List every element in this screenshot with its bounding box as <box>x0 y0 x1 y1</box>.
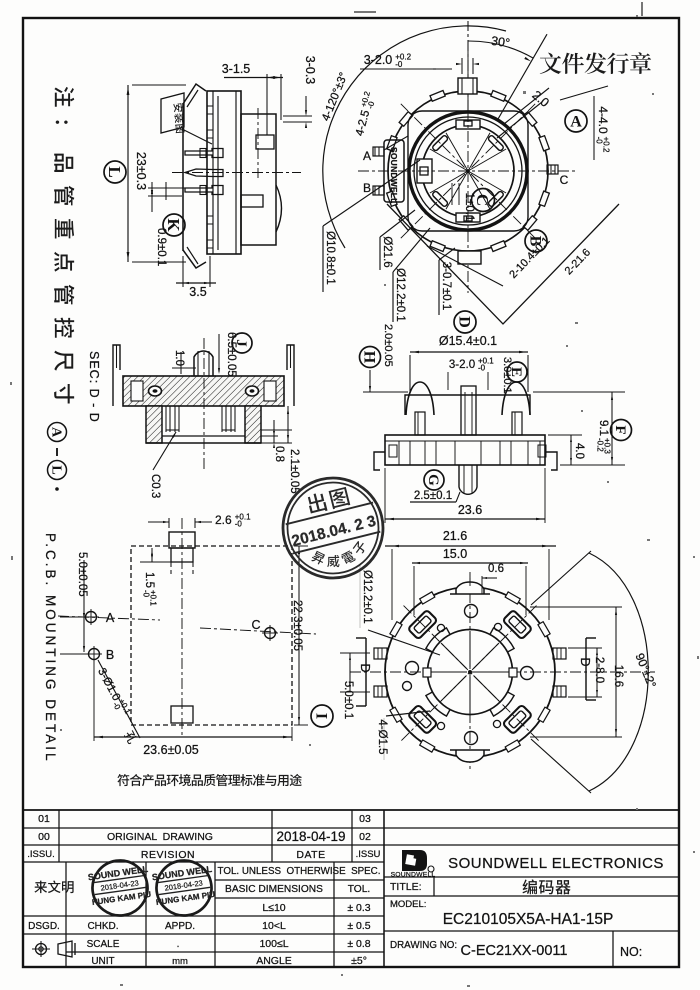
svg-text:ORIGINAL DRAWING: ORIGINAL DRAWING <box>107 831 213 843</box>
svg-text:APPD.: APPD. <box>165 921 195 932</box>
svg-text:TOL. UNLESS OTHERWISE SPEC.: TOL. UNLESS OTHERWISE SPEC. <box>218 866 381 877</box>
svg-text:F: F <box>612 425 628 434</box>
svg-text:.ISSU: .ISSU <box>356 849 381 860</box>
svg-text:± 0.8: ± 0.8 <box>347 938 370 950</box>
svg-text:Ø12.2±0.1: Ø12.2±0.1 <box>394 268 406 322</box>
svg-text:A: A <box>48 427 63 438</box>
svg-text:C-EC21XX-0011: C-EC21XX-0011 <box>461 943 568 959</box>
svg-text:4.0: 4.0 <box>573 443 585 459</box>
svg-text:D: D <box>456 316 473 328</box>
svg-text:2.5±0.1: 2.5±0.1 <box>414 490 452 502</box>
svg-text:-0: -0 <box>235 520 243 529</box>
svg-text:3.5: 3.5 <box>189 285 206 299</box>
svg-text:100≤L: 100≤L <box>259 938 288 950</box>
svg-text:SOUNDWELL ELECTRONICS: SOUNDWELL ELECTRONICS <box>448 855 664 872</box>
svg-text:D: D <box>358 663 372 672</box>
svg-text:CHKD.: CHKD. <box>87 921 118 932</box>
svg-text:01: 01 <box>38 813 50 825</box>
svg-text:EC210105X5A-HA1-15P: EC210105X5A-HA1-15P <box>443 911 614 928</box>
svg-text:02: 02 <box>359 831 371 843</box>
svg-text:3.0±0.1: 3.0±0.1 <box>501 357 513 394</box>
svg-text:0.9±0.1: 0.9±0.1 <box>155 228 167 266</box>
svg-text:22.3±0.05: 22.3±0.05 <box>291 600 303 651</box>
svg-text:2.6: 2.6 <box>215 513 232 527</box>
svg-text:-0: -0 <box>395 60 403 69</box>
svg-text:SEC: D - D: SEC: D - D <box>87 351 101 423</box>
svg-text:Ø10.8±0.1: Ø10.8±0.1 <box>324 231 336 285</box>
svg-text:± 0.5: ± 0.5 <box>347 920 370 932</box>
svg-text:Ø12.2±0.1: Ø12.2±0.1 <box>361 570 373 624</box>
svg-text:L≤10: L≤10 <box>262 902 285 914</box>
svg-text:A: A <box>363 149 371 163</box>
svg-text:G: G <box>425 474 441 486</box>
svg-text:DRAWING NO:: DRAWING NO: <box>390 940 457 951</box>
svg-text:9.1: 9.1 <box>597 420 609 436</box>
svg-text:.: . <box>177 939 180 950</box>
svg-text:MODEL:: MODEL: <box>390 899 426 910</box>
svg-text:16.6: 16.6 <box>612 665 624 687</box>
svg-text:UNIT: UNIT <box>91 956 114 967</box>
svg-text:2-8.0: 2-8.0 <box>593 657 605 683</box>
svg-text:3-1.5: 3-1.5 <box>222 62 251 76</box>
svg-text:NO:: NO: <box>620 945 642 959</box>
svg-text:ANGLE: ANGLE <box>256 955 292 967</box>
svg-text:A: A <box>570 113 582 130</box>
svg-text:-0: -0 <box>141 590 150 598</box>
svg-text:4-Ø1.5: 4-Ø1.5 <box>376 719 388 754</box>
svg-text:B: B <box>527 236 544 247</box>
svg-text:0.6: 0.6 <box>488 563 504 575</box>
svg-text:DSGD.: DSGD. <box>28 921 60 932</box>
svg-text:P.C.B. MOUNTING DETAIL: P.C.B. MOUNTING DETAIL <box>43 533 58 764</box>
svg-text:-0: -0 <box>478 364 486 373</box>
svg-text:2.1±0.05: 2.1±0.05 <box>288 449 300 494</box>
svg-text:3-0.7±0.1: 3-0.7±0.1 <box>440 262 452 311</box>
svg-text:23±0.3: 23±0.3 <box>134 152 148 190</box>
svg-text:mm: mm <box>172 956 188 967</box>
svg-text:Ø21.6: Ø21.6 <box>381 236 393 267</box>
svg-text:C: C <box>473 194 492 206</box>
svg-text:4-4.0: 4-4.0 <box>596 106 610 134</box>
svg-text:10<L: 10<L <box>262 920 286 932</box>
svg-text:± 0.3: ± 0.3 <box>347 902 370 914</box>
svg-text:.ISSU.: .ISSU. <box>27 849 54 860</box>
svg-text:B: B <box>106 648 114 662</box>
svg-text:Ø15.4±0.1: Ø15.4±0.1 <box>439 334 497 348</box>
svg-text:5.0±0.05: 5.0±0.05 <box>76 552 88 597</box>
svg-text:2.0±0.05: 2.0±0.05 <box>382 324 394 367</box>
svg-text:TITLE:: TITLE: <box>390 881 422 893</box>
svg-text:3-2.0: 3-2.0 <box>364 53 393 67</box>
svg-text:SCALE: SCALE <box>87 939 120 950</box>
svg-text:3-0.3: 3-0.3 <box>303 56 317 85</box>
svg-text:23.6±0.05: 23.6±0.05 <box>143 743 199 757</box>
svg-text:C: C <box>251 618 260 632</box>
svg-text:±5°: ±5° <box>351 955 367 967</box>
svg-text:B: B <box>363 181 371 195</box>
svg-text:0.8: 0.8 <box>273 446 285 462</box>
svg-text:L: L <box>48 465 63 474</box>
svg-text:C0.3: C0.3 <box>149 474 161 498</box>
svg-text:2018-04-19: 2018-04-19 <box>276 829 345 844</box>
svg-text:-0: -0 <box>594 137 603 145</box>
svg-text:1.0: 1.0 <box>173 350 185 366</box>
svg-text:23.6: 23.6 <box>458 503 482 517</box>
svg-text:I: I <box>313 713 330 719</box>
svg-text:C: C <box>560 173 569 187</box>
svg-text:3-2.0: 3-2.0 <box>449 359 475 371</box>
svg-text:J: J <box>233 339 249 347</box>
svg-text:00: 00 <box>38 831 50 843</box>
svg-text:21.6: 21.6 <box>443 529 467 543</box>
svg-text:30°: 30° <box>490 34 511 50</box>
svg-text:03: 03 <box>359 813 371 825</box>
svg-text:-0.2: -0.2 <box>595 438 604 452</box>
svg-text:1±0.1: 1±0.1 <box>463 193 475 222</box>
svg-text:L: L <box>105 166 124 177</box>
svg-text:BASIC DIMENSIONS: BASIC DIMENSIONS <box>225 884 323 895</box>
svg-text:TOL.: TOL. <box>348 884 370 895</box>
svg-text:D: D <box>578 657 592 666</box>
svg-text:1.5: 1.5 <box>143 572 155 588</box>
svg-text:15.0: 15.0 <box>443 547 467 561</box>
svg-text:5.0±0.1: 5.0±0.1 <box>342 681 354 719</box>
svg-text:H: H <box>361 351 378 364</box>
svg-text:REVISION: REVISION <box>141 849 195 861</box>
svg-text:DATE: DATE <box>296 849 325 861</box>
